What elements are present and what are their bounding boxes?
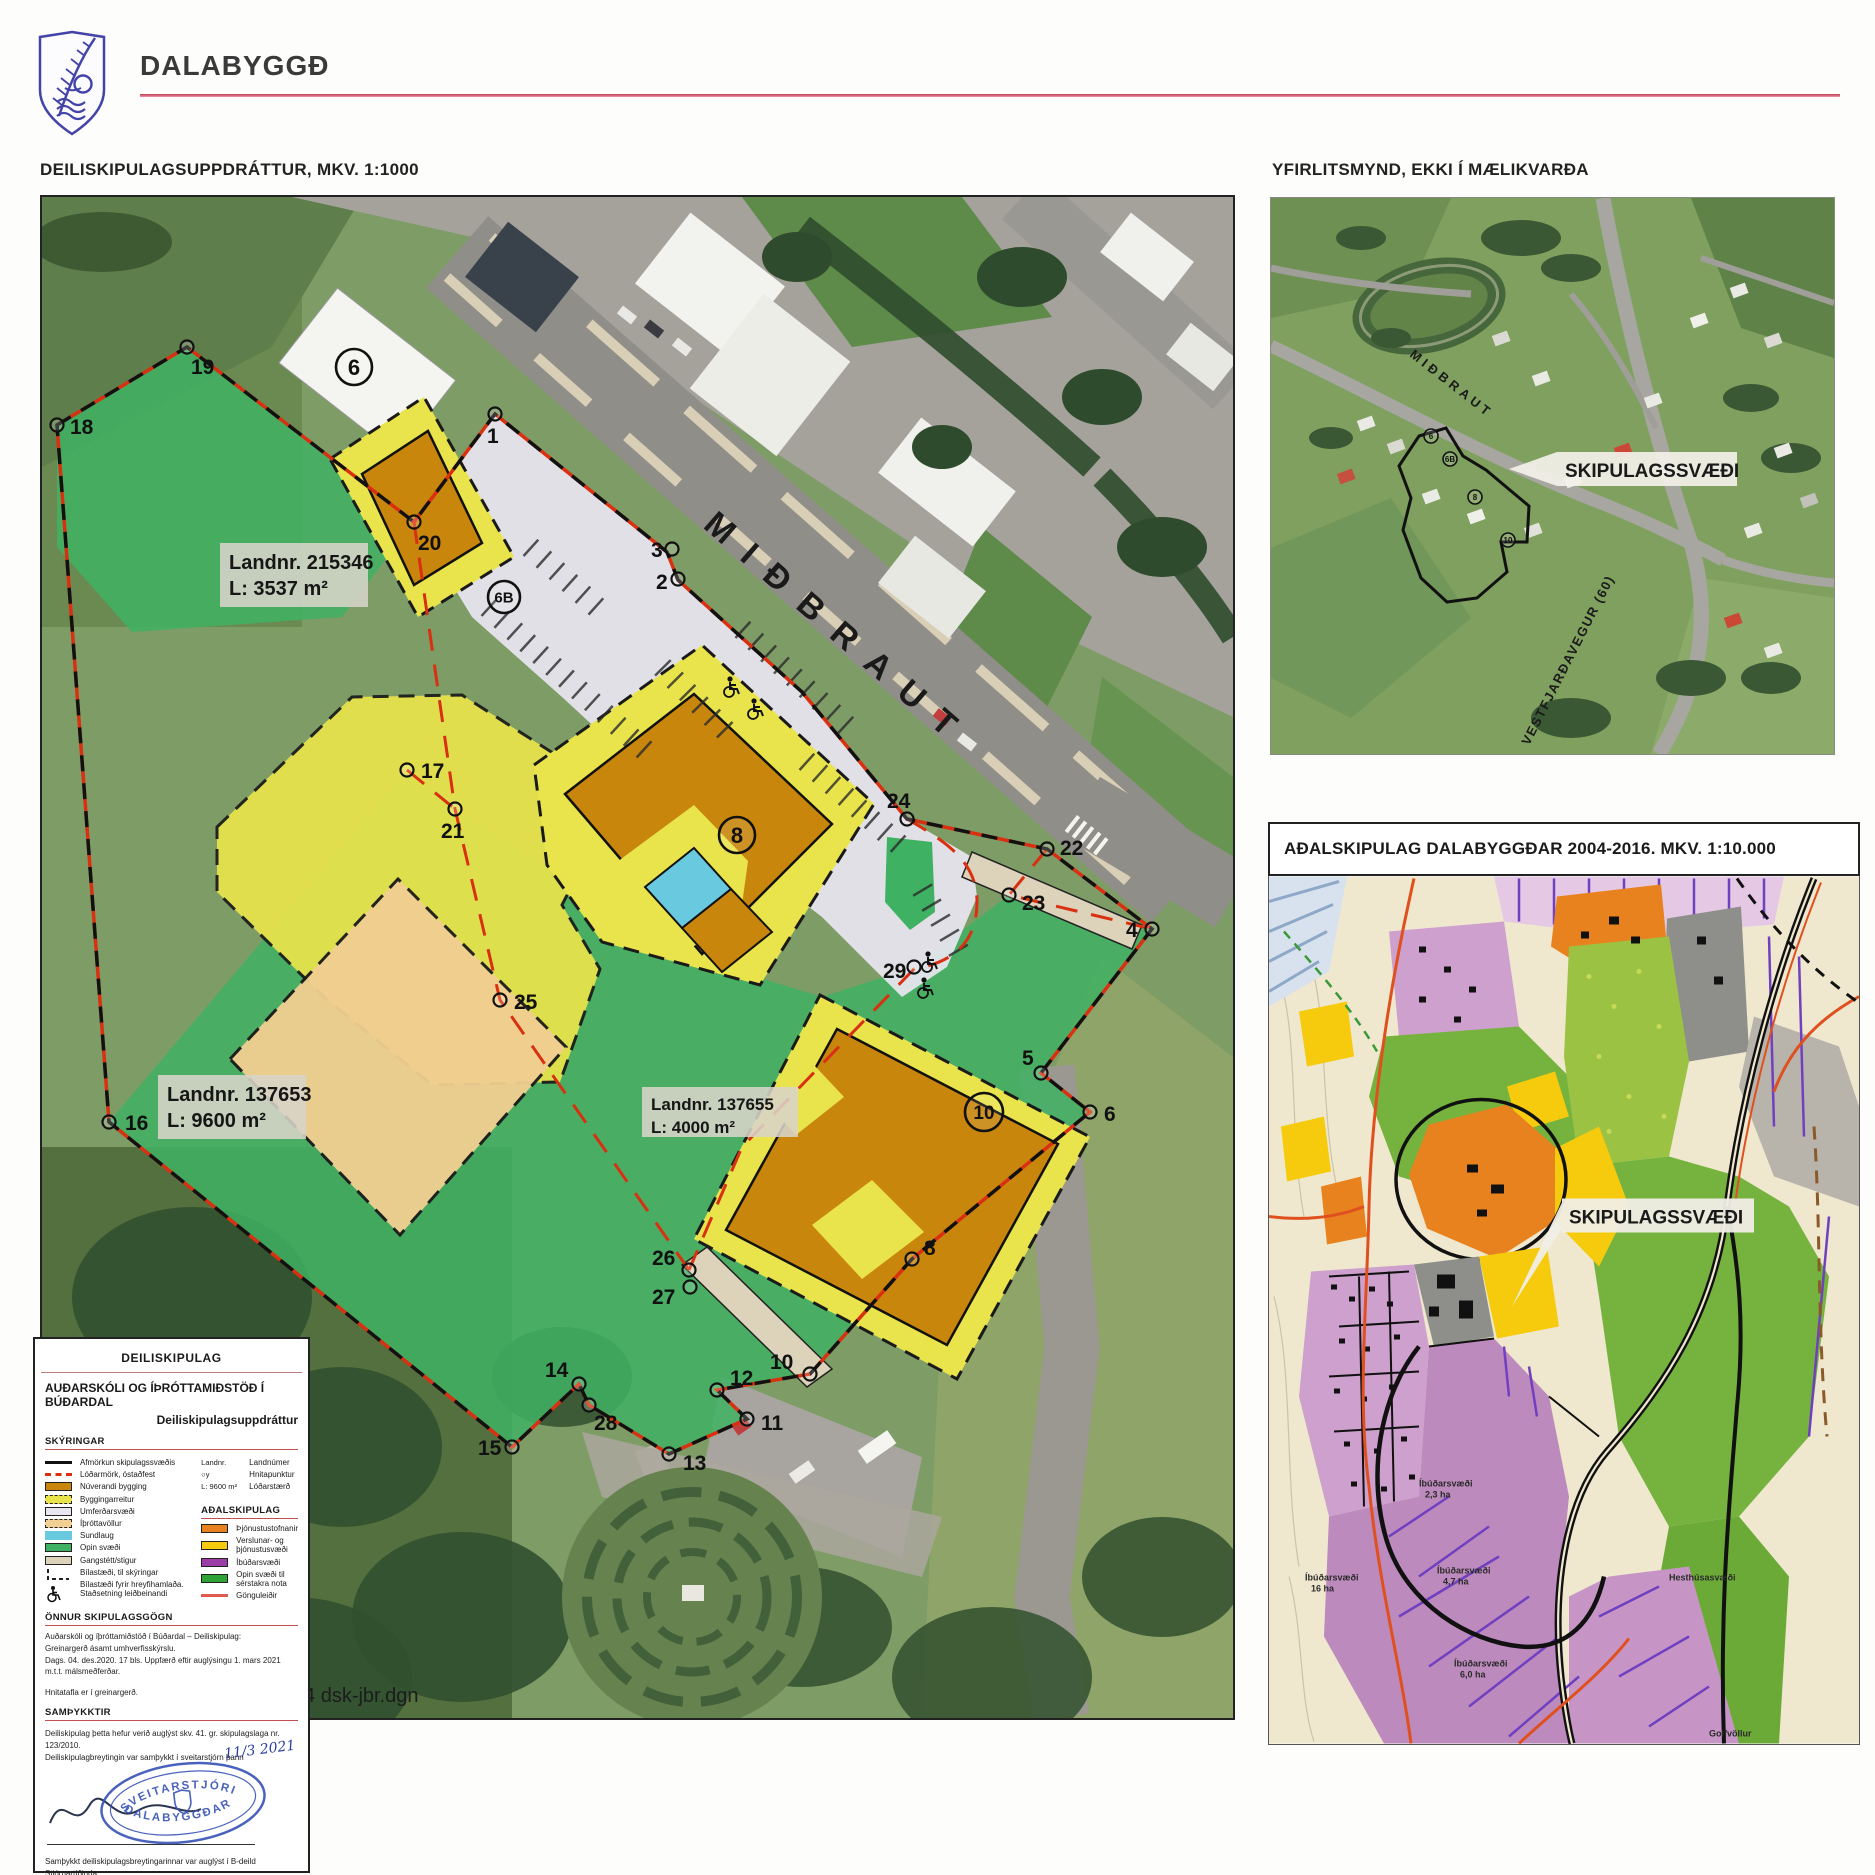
map-point-marker (1041, 843, 1054, 856)
map-point-marker (906, 1253, 919, 1266)
legend-line-swatch (45, 1461, 72, 1464)
map-point-number: 12 (730, 1367, 753, 1390)
legend-color-swatch (45, 1531, 72, 1540)
map-point-marker (666, 543, 679, 556)
map-point-number: 22 (1060, 837, 1083, 860)
legend-color-swatch (45, 1543, 72, 1552)
map-point-number: 18 (70, 416, 94, 439)
map-point-number: 10 (770, 1351, 793, 1374)
legend-symbol-row: L: 9600 m²Lóðarstærð (201, 1482, 298, 1491)
building-label-number: 6B (494, 589, 513, 606)
map-point-number: 27 (652, 1286, 675, 1309)
legend-symbol-label: Hnitapunktur (249, 1470, 294, 1479)
legend-samthykktir-heading: SAMÞYKKTIR (45, 1707, 298, 1721)
map-point-number: 21 (441, 820, 465, 843)
map-point-marker (901, 813, 914, 826)
labyrinth-garden (562, 1467, 822, 1718)
map-point-number: 19 (191, 356, 214, 379)
legend-item: Gangstétt/stigur (45, 1556, 193, 1565)
map-point-number: 24 (887, 790, 911, 813)
municipal-stamp: SVEITARSTJÓRI DALABYGGÐAR (92, 1750, 273, 1856)
legend-color-swatch (201, 1558, 228, 1567)
legend-onnur-line: Dags. 04. des.2020. 17 bls. Uppfærð efti… (45, 1655, 298, 1667)
legend-item-label: Opin svæði til sérstakra nota (236, 1570, 298, 1588)
map-point-marker (1003, 889, 1016, 902)
legend-item: Gönguleiðir (201, 1591, 298, 1600)
map-point-marker (804, 1368, 817, 1381)
legend-item-label: Íþróttavöllur (80, 1519, 122, 1528)
legend-onnur-heading: ÖNNUR SKIPULAGSGÖGN (45, 1612, 298, 1626)
overview-building-number: 10 (1504, 536, 1513, 545)
map-point-marker (506, 1441, 519, 1454)
legend-item: Byggingarreitur (45, 1495, 193, 1504)
map-point-marker (573, 1378, 586, 1391)
map-point-number: 17 (421, 760, 444, 783)
building-label-number: 8 (731, 823, 743, 848)
map-point-number: 29 (883, 960, 906, 983)
map-point-marker (908, 961, 921, 974)
legend-item: Lóðarmörk, óstaðfest (45, 1470, 193, 1479)
map-point-marker (583, 1399, 596, 1412)
master-area-label: SKIPULAGSSVÆÐI (1569, 1208, 1743, 1229)
legend-item: Opin svæði (45, 1543, 193, 1552)
legend-item: Bílastæði, til skýringar (45, 1568, 193, 1577)
legend-color-swatch (201, 1541, 228, 1550)
map-point-number: 5 (1022, 1047, 1034, 1070)
master-plan-title: AÐALSKIPULAG DALABYGGÐAR 2004-2016. MKV.… (1268, 822, 1860, 876)
legend-item-label: Opin svæði (80, 1543, 120, 1552)
legend-line-swatch (201, 1594, 228, 1597)
legend-symbol-row: ○yHnitapunktur (201, 1470, 298, 1479)
map-point-marker (672, 573, 685, 586)
legend-adalskipulag-heading: AÐALSKIPULAG (201, 1505, 298, 1519)
legend-item-label: Afmörkun skipulagssvæðis (80, 1458, 175, 1467)
map-point-marker (711, 1384, 724, 1397)
legend-color-swatch (45, 1519, 72, 1528)
map-point-marker (663, 1448, 676, 1461)
map-point-number: 11 (761, 1412, 784, 1435)
legend-symbol-label: Lóðarstærð (249, 1482, 290, 1491)
legend-project-title: AUÐARSKÓLI OG ÍÞRÓTTAMIÐSTÖÐ Í BÚÐARDAL (45, 1381, 298, 1409)
map-point-number: 23 (1022, 892, 1045, 915)
legend-color-swatch (45, 1482, 72, 1491)
map-point-number: 16 (125, 1112, 148, 1135)
legend-color-swatch (45, 1556, 72, 1565)
legend-item-label: Gangstétt/stigur (80, 1556, 136, 1565)
municipality-shield-icon (35, 28, 109, 138)
legend-symbols: Landnr.Landnúmer○yHnitapunkturL: 9600 m²… (201, 1458, 298, 1491)
legend-item: Núverandi bygging (45, 1482, 193, 1491)
municipality-name: DALABYGGÐ (140, 50, 329, 82)
legend-item: Íbúðarsvæði (201, 1558, 298, 1567)
legend-hnitatafla-note: Hnitatafla er í greinargerð. (45, 1687, 298, 1699)
map-point-number: 2 (656, 571, 668, 594)
legend-onnur-line: Auðarskóli og íþróttamiðstöð í Búðardal … (45, 1631, 298, 1643)
map-point-marker (683, 1264, 696, 1277)
map-point-marker (449, 803, 462, 816)
map-point-marker (1084, 1106, 1097, 1119)
legend-color-swatch (201, 1574, 228, 1583)
legend-adalskipulag-items: ÞjónustustofnanirVerslunar- og þjónustus… (201, 1524, 298, 1600)
map-point-marker (494, 994, 507, 1007)
map-point-marker (489, 408, 502, 421)
legend-skyringar-heading: SKÝRINGAR (45, 1436, 298, 1450)
parcel-landnr: Landnr. 137653 (167, 1084, 312, 1106)
wheelchair-icon (45, 1585, 72, 1594)
map-point-marker (1146, 923, 1159, 936)
legend-item: Opin svæði til sérstakra nota (201, 1570, 298, 1588)
legend-item: Umferðarsvæði (45, 1507, 193, 1516)
legend-item: Sundlaug (45, 1531, 193, 1540)
legend-item-label: Umferðarsvæði (80, 1507, 135, 1516)
main-map-title: DEILISKIPULAGSUPPDRÁTTUR, MKV. 1:1000 (40, 160, 419, 180)
legend-subtitle: Deiliskipulagsuppdráttur (45, 1413, 298, 1427)
map-point-marker (741, 1413, 754, 1426)
legend-item-label: Gönguleiðir (236, 1591, 277, 1600)
legend-item-label: Verslunar- og þjónustusvæði (236, 1536, 298, 1554)
parcel-area: L: 9600 m² (167, 1110, 266, 1132)
legend-color-swatch (201, 1524, 228, 1533)
legend-item-label: Bílastæði fyrir hreyfihamlaða. Staðsetni… (80, 1580, 193, 1598)
master-plan-panel: AÐALSKIPULAG DALABYGGÐAR 2004-2016. MKV.… (1268, 822, 1860, 1747)
map-point-number: 6 (1104, 1103, 1116, 1126)
legend-color-swatch (45, 1495, 72, 1504)
map-point-number: 8 (924, 1237, 936, 1260)
legend-item-label: Íbúðarsvæði (236, 1558, 280, 1567)
legend-item-label: Byggingarreitur (80, 1495, 134, 1504)
map-point-marker (408, 516, 421, 529)
zone-label: Hesthúsasvæði (1669, 1573, 1736, 1583)
parcel-area: L: 3537 m² (229, 578, 328, 600)
map-point-number: 25 (514, 991, 538, 1014)
legend-symbol-label: Landnúmer (249, 1458, 289, 1467)
legend-item-label: Sundlaug (80, 1531, 114, 1540)
parcel-landnr: Landnr. 137655 (651, 1095, 774, 1114)
map-point-marker (181, 341, 194, 354)
legend-doc-type: DEILISKIPULAG (45, 1351, 298, 1365)
plan-sheet: DALABYGGÐ DEILISKIPULAGSUPPDRÁTTUR, MKV.… (0, 0, 1875, 1875)
map-point-number: 14 (545, 1359, 569, 1382)
overview-map: 66B810 SKIPULAGSSVÆÐI MIÐBRAUT VESTFJARÐ… (1270, 197, 1835, 755)
master-plan-map: Íbúðarsvæði2,3 haÍbúðarsvæði4,7 haÍbúðar… (1268, 876, 1860, 1745)
parcel-area: L: 4000 m² (651, 1118, 735, 1137)
map-point-number: 28 (594, 1412, 618, 1435)
legend-symbol-row: Landnr.Landnúmer (201, 1458, 298, 1467)
map-point-number: 20 (418, 532, 441, 555)
legend-item-label: Núverandi bygging (80, 1482, 147, 1491)
map-point-number: 1 (487, 425, 499, 448)
legend-item: Afmörkun skipulagssvæðis (45, 1458, 193, 1467)
overview-building-number: 8 (1473, 493, 1478, 502)
overview-building-number: 6 (1429, 432, 1434, 441)
legend-item: Þjónustustofnanir (201, 1524, 298, 1533)
map-point-marker (1035, 1067, 1048, 1080)
map-point-number: 26 (652, 1247, 675, 1270)
parking-icon (45, 1568, 72, 1577)
header-rule (140, 94, 1840, 97)
map-point-marker (684, 1281, 697, 1294)
legend-items: Afmörkun skipulagssvæðisLóðarmörk, óstað… (45, 1455, 193, 1603)
legend-box: DEILISKIPULAG AUÐARSKÓLI OG ÍÞRÓTTAMIÐST… (33, 1337, 310, 1873)
legend-color-swatch (45, 1507, 72, 1516)
map-point-marker (401, 764, 414, 777)
legend-item-label: Bílastæði, til skýringar (80, 1568, 158, 1577)
overview-map-title: YFIRLITSMYND, EKKI Í MÆLIKVARÐA (1272, 160, 1589, 180)
legend-onnur-line: m.t.t. málsmeðferðar. (45, 1666, 298, 1678)
legend-symbol: Landnr. (201, 1458, 249, 1467)
legend-item-label: Lóðarmörk, óstaðfest (80, 1470, 155, 1479)
legend-item-label: Þjónustustofnanir (236, 1524, 298, 1533)
legend-onnur-text: Auðarskóli og íþróttamiðstöð í Búðardal … (45, 1631, 298, 1677)
legend-symbol: ○y (201, 1470, 249, 1479)
building-label-number: 6 (348, 355, 360, 380)
parcel-landnr: Landnr. 215346 (229, 552, 374, 574)
legend-line-swatch (45, 1473, 72, 1476)
overview-building-number: 6B (1445, 455, 1455, 464)
map-point-marker (103, 1116, 116, 1129)
map-point-number: 3 (651, 539, 663, 562)
zone-label: Golfvöllur (1709, 1729, 1752, 1739)
legend-onnur-line: Greinargerð ásamt umhverfisskýrslu. (45, 1643, 298, 1655)
publication-statement: Samþykkt deiliskipulagsbreytingarinnar v… (45, 1857, 256, 1875)
map-point-number: 13 (683, 1452, 706, 1475)
legend-item: Íþróttavöllur (45, 1519, 193, 1528)
map-point-number: 4 (1126, 919, 1138, 942)
legend-item: Verslunar- og þjónustusvæði (201, 1536, 298, 1554)
overview-area-label: SKIPULAGSSVÆÐI (1565, 461, 1739, 482)
map-point-marker (51, 419, 64, 432)
building-label-number: 10 (973, 1103, 994, 1124)
legend-item: Bílastæði fyrir hreyfihamlaða. Staðsetni… (45, 1580, 193, 1598)
legend-symbol: L: 9600 m² (201, 1482, 249, 1491)
map-point-number: 15 (478, 1437, 502, 1460)
